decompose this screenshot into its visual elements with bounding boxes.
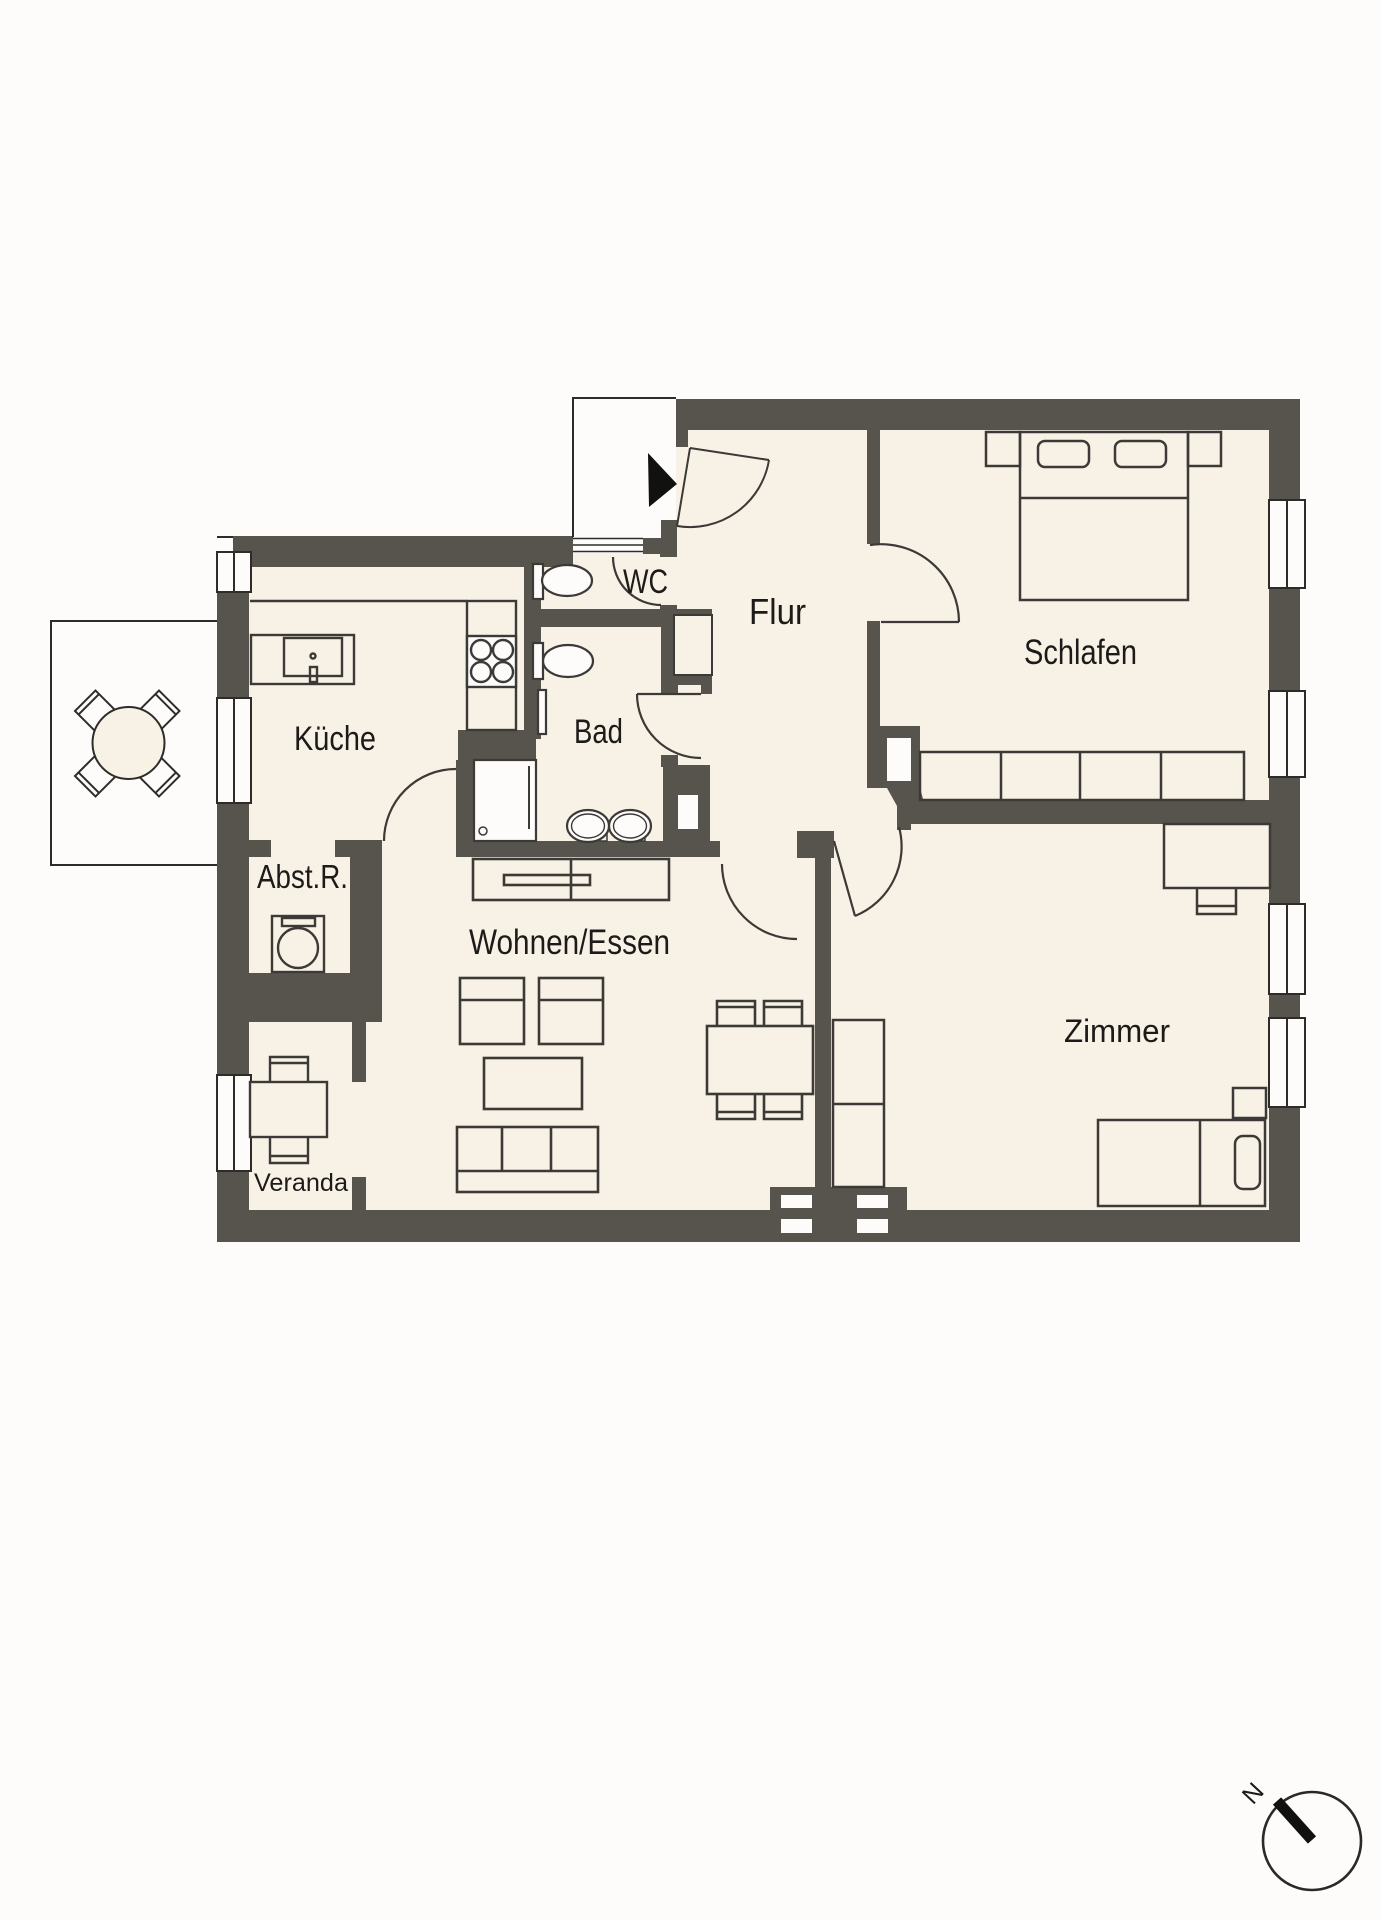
svg-text:Veranda: Veranda bbox=[254, 1169, 348, 1197]
svg-text:WC: WC bbox=[623, 563, 668, 601]
svg-text:Flur: Flur bbox=[749, 591, 806, 632]
svg-text:Abst.R.: Abst.R. bbox=[257, 858, 348, 895]
svg-text:Bad: Bad bbox=[574, 713, 623, 751]
svg-text:Küche: Küche bbox=[294, 720, 376, 758]
svg-text:Zimmer: Zimmer bbox=[1064, 1013, 1170, 1049]
svg-text:Schlafen: Schlafen bbox=[1024, 633, 1137, 672]
svg-text:Wohnen/Essen: Wohnen/Essen bbox=[469, 923, 670, 962]
